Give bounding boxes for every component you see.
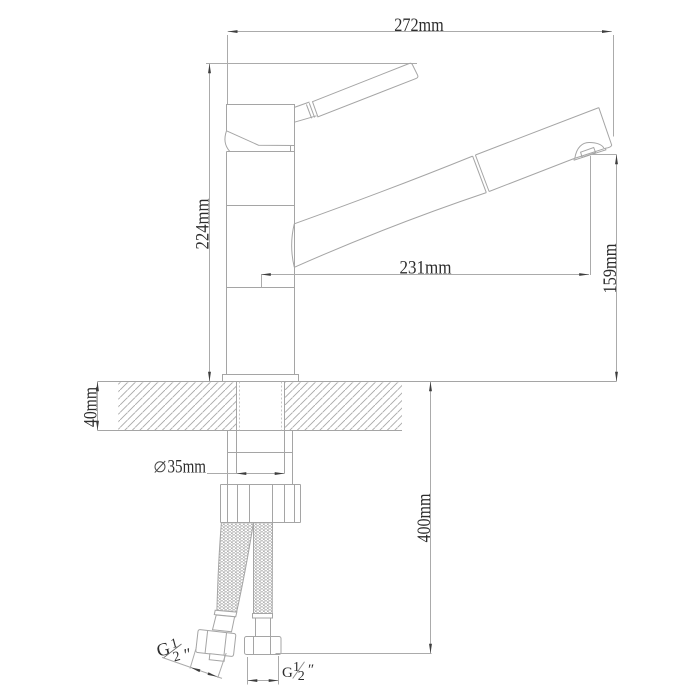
svg-text:231mm: 231mm bbox=[400, 258, 452, 279]
svg-text:G: G bbox=[282, 665, 293, 681]
svg-text:272mm: 272mm bbox=[394, 15, 444, 36]
svg-text:224mm: 224mm bbox=[193, 198, 214, 249]
svg-text:2: 2 bbox=[298, 669, 305, 684]
svg-text:″: ″ bbox=[308, 662, 314, 678]
svg-text:35mm: 35mm bbox=[168, 457, 207, 478]
svg-text:159mm: 159mm bbox=[600, 243, 621, 293]
svg-text:400mm: 400mm bbox=[414, 493, 435, 542]
